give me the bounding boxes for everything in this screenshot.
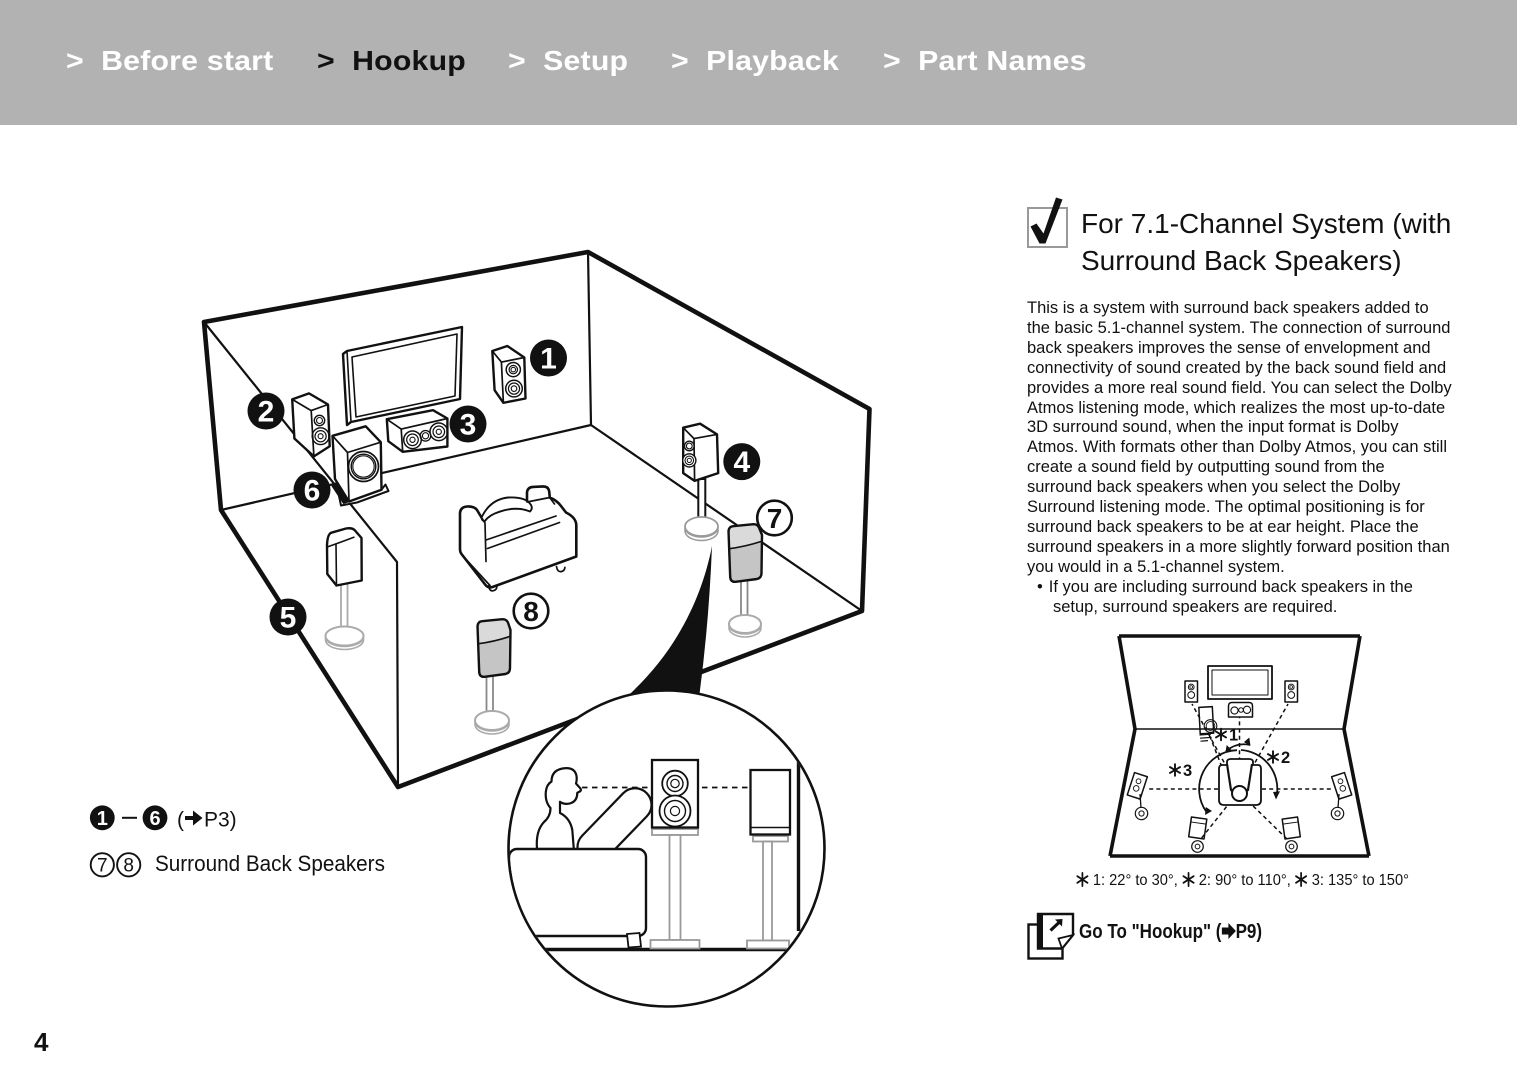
svg-text:7: 7	[767, 503, 783, 534]
svg-text:4: 4	[733, 446, 750, 479]
svg-text:2: 2	[258, 396, 275, 429]
svg-text:7: 7	[97, 856, 108, 877]
svg-text:1: 1	[540, 343, 557, 376]
svg-text:3: 3	[1183, 762, 1192, 780]
svg-text:6: 6	[304, 475, 321, 508]
svg-text:1: 1	[1229, 727, 1238, 745]
svg-text:8: 8	[123, 856, 134, 877]
svg-text:6: 6	[149, 808, 160, 830]
svg-text:P3): P3)	[204, 809, 237, 832]
svg-text:5: 5	[280, 602, 297, 635]
svg-text:(: (	[177, 809, 184, 832]
svg-text:3: 3	[460, 409, 477, 442]
svg-text:1: 1	[97, 808, 108, 830]
svg-text:2: 2	[1281, 749, 1290, 767]
svg-text:8: 8	[523, 596, 539, 627]
